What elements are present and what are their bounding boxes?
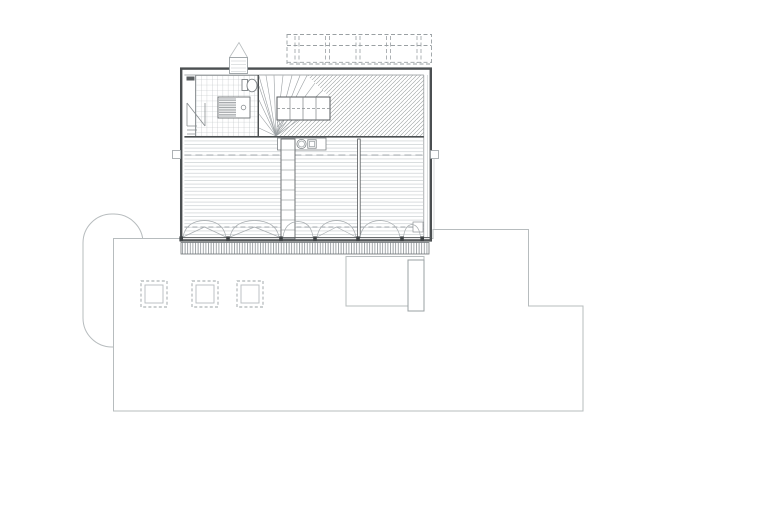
shelf-column <box>281 139 295 239</box>
section-marker-left <box>173 151 181 159</box>
stair-hall <box>258 75 424 137</box>
stair-flight-box <box>277 97 330 120</box>
room-divider <box>358 139 361 237</box>
plank-floor <box>184 139 423 237</box>
floor-plan-canvas: Architectural floor plan — attic level w… <box>0 0 780 520</box>
building-plan <box>173 43 439 242</box>
wall-cabinet <box>413 222 423 232</box>
section-marker-right <box>431 151 439 159</box>
terrace-edge-hatch <box>181 243 429 255</box>
bathroom <box>187 76 259 137</box>
radiator <box>187 77 195 81</box>
toilet <box>242 79 257 92</box>
floor-plan-drawing <box>0 0 780 520</box>
shower <box>218 97 250 118</box>
chimney-shaft <box>408 260 424 311</box>
main-room <box>179 138 431 241</box>
